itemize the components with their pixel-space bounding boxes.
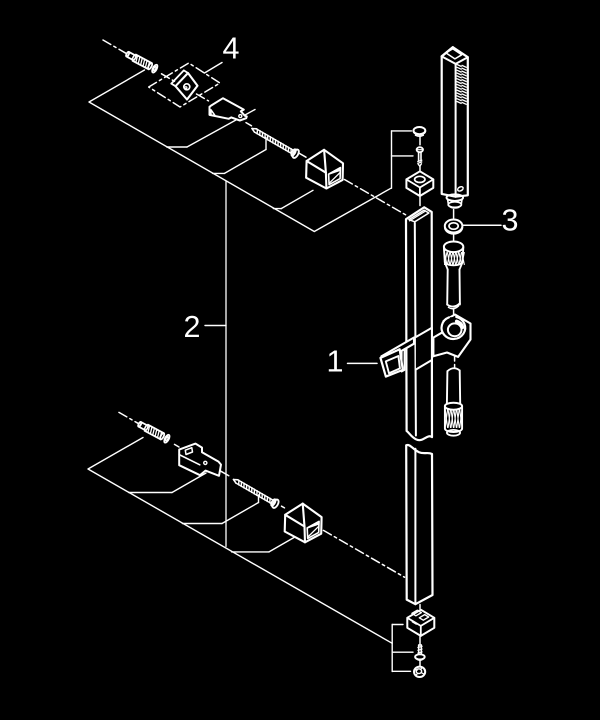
svg-text:2: 2 <box>184 310 201 344</box>
svg-text:4: 4 <box>223 32 240 66</box>
svg-text:1: 1 <box>327 345 344 379</box>
svg-text:3: 3 <box>502 204 519 238</box>
